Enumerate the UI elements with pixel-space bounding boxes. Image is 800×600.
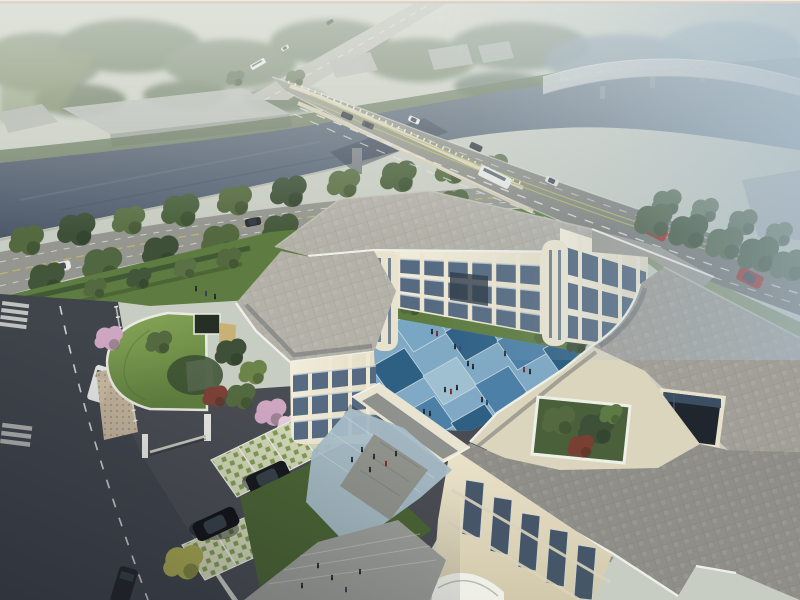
person: [467, 361, 469, 367]
person: [481, 397, 483, 403]
person: [195, 286, 197, 292]
haze-overlay: [430, 0, 800, 360]
rendering-canvas: Aerial dusk rendering of a three-storey …: [0, 0, 800, 600]
shade-overlay: [0, 330, 460, 600]
person: [529, 369, 531, 375]
person: [472, 364, 474, 370]
person: [214, 294, 216, 300]
person: [486, 400, 488, 406]
person: [205, 291, 207, 297]
person: [523, 367, 525, 373]
architectural-rendering: Aerial dusk rendering of a three-storey …: [0, 0, 800, 600]
frame-edge-highlight: [0, 0, 800, 1]
